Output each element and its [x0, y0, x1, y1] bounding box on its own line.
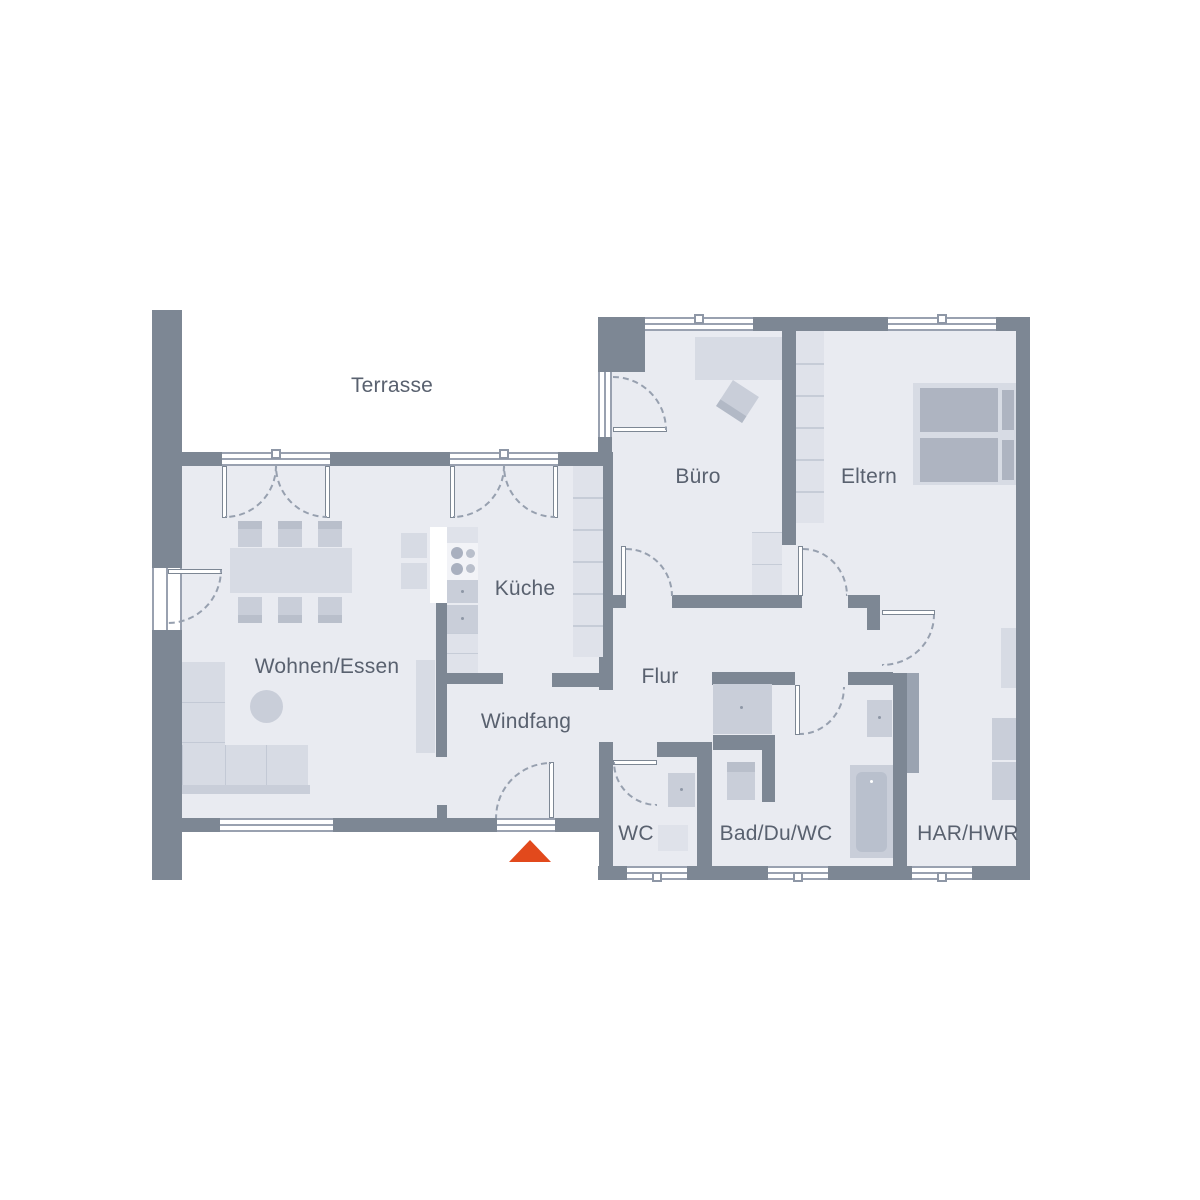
kitchen-sink — [447, 605, 478, 633]
dining-chair — [238, 597, 262, 623]
room-label-har-hwr: HAR/HWR — [917, 822, 1019, 846]
room-label-flur: Flur — [642, 665, 679, 689]
wall-windfang-divider — [436, 593, 447, 757]
buero-cabinet — [752, 532, 782, 595]
dining-chair — [318, 521, 342, 547]
room-label-bad: Bad/Du/WC — [720, 822, 833, 846]
eltern-window-symbol-icon — [937, 314, 947, 324]
bed-pillow — [1002, 440, 1014, 480]
har-appliance — [992, 718, 1016, 760]
bad-toilet — [727, 762, 755, 800]
wardrobe — [796, 331, 824, 523]
wall-kueche-south-stub — [552, 673, 613, 687]
sofa-cushion-line — [225, 745, 226, 785]
shower — [713, 684, 772, 734]
kitchen-tall-cabinets — [573, 466, 603, 657]
sofa-cushion-line — [182, 742, 225, 743]
dining-chair — [278, 597, 302, 623]
coffee-table — [250, 690, 283, 723]
kitchen-sink — [447, 580, 478, 603]
dining-table — [230, 548, 352, 593]
wc-window-symbol-icon — [652, 872, 662, 882]
bed-pillow — [1002, 390, 1014, 430]
stove-burner — [466, 564, 475, 573]
sofa-cushion-line — [266, 745, 267, 785]
wall-buero-eltern-divider — [782, 331, 796, 545]
dining-chair — [238, 521, 262, 547]
wc-toilet — [658, 825, 688, 851]
stove — [447, 543, 478, 580]
entrance-threshold — [497, 818, 555, 832]
buero-terrace-door-west — [598, 372, 612, 437]
bad-washbasin — [867, 700, 892, 737]
wall-entry-stub — [437, 805, 447, 818]
room-label-windfang: Windfang — [481, 710, 571, 734]
dining-chair — [318, 597, 342, 623]
bathtub-basin — [856, 772, 887, 852]
wall-outer-right — [1016, 317, 1030, 880]
sofa-cushion-line — [182, 702, 225, 703]
room-label-eltern: Eltern — [841, 465, 897, 489]
bed-mattress — [920, 438, 998, 482]
wall-shower-h — [713, 735, 775, 750]
room-label-terrasse: Terrasse — [351, 374, 433, 398]
living-window-south — [220, 818, 333, 832]
floor-passage-windfang-flur — [598, 690, 612, 742]
wall-corner-block-buero — [598, 317, 645, 372]
wall-flur-north-b — [672, 595, 802, 608]
wall-windfang-stub-h — [447, 673, 503, 684]
kitchen-counter-edge — [430, 527, 447, 603]
stove-burner — [451, 563, 463, 575]
wc-washbasin — [668, 773, 695, 807]
sideboard — [416, 660, 435, 753]
dining-chair — [278, 521, 302, 547]
wall-har-pilaster — [907, 673, 919, 773]
wall-flur-north-a — [612, 595, 626, 608]
bad-window-symbol-icon — [793, 872, 803, 882]
desk — [695, 337, 782, 380]
wall-har-left — [893, 673, 907, 866]
wall-buero-left-lower — [598, 437, 612, 452]
wall-bad-north-right — [848, 672, 893, 685]
room-label-wohnen-essen: Wohnen/Essen — [255, 655, 399, 679]
entrance-arrow-icon — [509, 840, 551, 862]
kitchen-counter-cell — [447, 633, 478, 673]
terrace-door-1-symbol-icon — [271, 449, 281, 459]
wall-har-stub — [867, 595, 880, 630]
kitchen-counter-cell — [447, 527, 478, 543]
floor-plan: Terrasse Wohnen/Essen Küche Windfang Flu… — [0, 0, 1200, 1200]
bathtub — [850, 765, 893, 858]
room-label-kueche: Küche — [495, 577, 556, 601]
buero-window-symbol-icon — [694, 314, 704, 324]
kitchen-island-unit — [401, 533, 427, 558]
stove-burner — [451, 547, 463, 559]
har-appliance — [992, 762, 1016, 800]
wall-wc-bad-divider — [697, 742, 712, 866]
har-window-symbol-icon — [937, 872, 947, 882]
room-label-buero: Büro — [675, 465, 720, 489]
room-label-wc: WC — [618, 822, 653, 846]
wall-shower-v — [762, 750, 775, 802]
wall-wc-left — [599, 742, 613, 880]
stove-burner — [466, 549, 475, 558]
sofa-back — [182, 785, 310, 794]
sofa-horizontal — [182, 745, 308, 785]
terrace-door-2-symbol-icon — [499, 449, 509, 459]
har-cabinet — [1001, 628, 1016, 688]
kitchen-island-unit — [401, 563, 427, 589]
bed-mattress — [920, 388, 998, 432]
